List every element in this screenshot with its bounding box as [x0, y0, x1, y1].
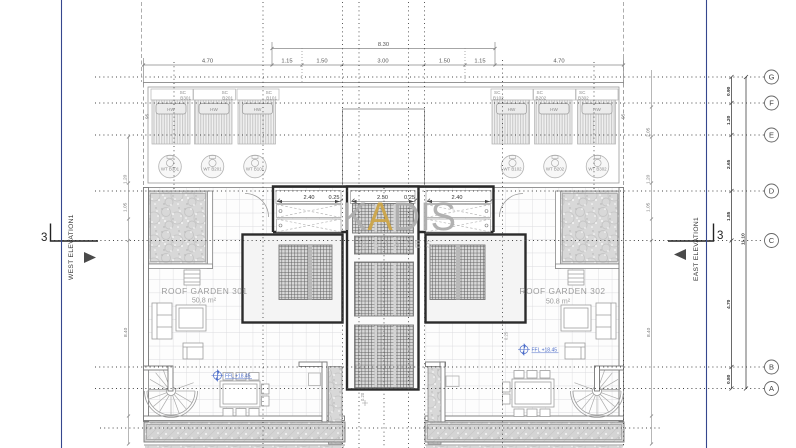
- svg-text:1.50: 1.50: [316, 59, 327, 65]
- svg-text:1.05: 1.05: [123, 202, 129, 212]
- svg-text:0.25: 0.25: [329, 195, 340, 201]
- svg-text:1.05: 1.05: [646, 202, 652, 212]
- svg-text:EAST ELEVATION1: EAST ELEVATION1: [693, 217, 700, 281]
- svg-text:B: B: [769, 363, 774, 372]
- svg-text:FFL +18.45: FFL +18.45: [225, 373, 251, 379]
- svg-text:HW: HW: [508, 107, 516, 112]
- svg-text:0.25: 0.25: [504, 331, 509, 340]
- svg-text:50.8 m²: 50.8 m²: [546, 297, 571, 306]
- svg-text:SC: SC: [180, 90, 187, 95]
- svg-text:F: F: [769, 99, 774, 108]
- svg-text:4.70: 4.70: [726, 299, 732, 309]
- svg-text:WT B102: WT B102: [503, 167, 522, 172]
- svg-text:FFL +18.45: FFL +18.45: [532, 347, 558, 353]
- svg-text:1.15: 1.15: [474, 59, 485, 65]
- svg-text:8.40: 8.40: [123, 327, 129, 337]
- svg-text:1.20: 1.20: [726, 115, 732, 125]
- svg-text:2.40: 2.40: [304, 195, 315, 201]
- svg-text:SC: SC: [266, 90, 273, 95]
- svg-text:SC: SC: [579, 90, 586, 95]
- svg-text:WT B302: WT B302: [588, 167, 607, 172]
- svg-text:SC: SC: [222, 90, 229, 95]
- svg-text:HW: HW: [593, 107, 601, 112]
- svg-text:50,8 m²: 50,8 m²: [192, 296, 217, 305]
- svg-text:0.90: 0.90: [726, 86, 732, 96]
- svg-text:0.80: 0.80: [726, 374, 732, 384]
- svg-text:HW: HW: [167, 107, 175, 112]
- svg-text:4.70: 4.70: [553, 59, 564, 65]
- svg-text:1.50: 1.50: [439, 59, 450, 65]
- svg-text:KADIS: KADIS: [342, 195, 456, 239]
- svg-text:0.20: 0.20: [360, 392, 365, 401]
- svg-text:WT B101: WT B101: [246, 167, 265, 172]
- svg-text:1.85: 1.85: [726, 211, 732, 221]
- svg-text:4.70: 4.70: [202, 59, 213, 65]
- svg-text:E: E: [769, 131, 774, 140]
- svg-text:WT B202: WT B202: [546, 167, 565, 172]
- svg-text:WEST ELEVATION1: WEST ELEVATION1: [68, 214, 75, 280]
- svg-text:SC: SC: [494, 90, 501, 95]
- svg-text:A: A: [769, 384, 774, 393]
- svg-text:G: G: [769, 73, 775, 82]
- svg-text:1.15: 1.15: [281, 59, 292, 65]
- svg-text:1.20: 1.20: [123, 174, 129, 184]
- svg-text:95: 95: [145, 113, 151, 119]
- svg-text:2.05: 2.05: [646, 127, 652, 137]
- svg-text:8.30: 8.30: [378, 42, 389, 48]
- svg-text:D: D: [769, 187, 775, 196]
- svg-text:3: 3: [717, 230, 723, 242]
- svg-text:ROOF GARDEN 302: ROOF GARDEN 302: [519, 286, 605, 296]
- svg-text:HW: HW: [210, 107, 218, 112]
- svg-text:SC: SC: [537, 90, 544, 95]
- svg-text:11.10: 11.10: [741, 233, 747, 245]
- svg-text:ROOF GARDEN 301: ROOF GARDEN 301: [161, 286, 247, 296]
- svg-text:2.65: 2.65: [726, 159, 732, 169]
- svg-text:WT B201: WT B201: [203, 167, 222, 172]
- svg-text:3: 3: [41, 232, 47, 244]
- svg-text:3.00: 3.00: [377, 59, 388, 65]
- svg-text:WT B301: WT B301: [161, 167, 180, 172]
- svg-text:C: C: [769, 236, 775, 245]
- svg-text:1.20: 1.20: [646, 174, 652, 184]
- svg-text:HW: HW: [254, 107, 262, 112]
- svg-text:HW: HW: [550, 107, 558, 112]
- svg-text:8.40: 8.40: [646, 327, 652, 337]
- svg-text:95: 95: [621, 113, 627, 119]
- svg-text:ESTATES: ESTATES: [361, 240, 437, 251]
